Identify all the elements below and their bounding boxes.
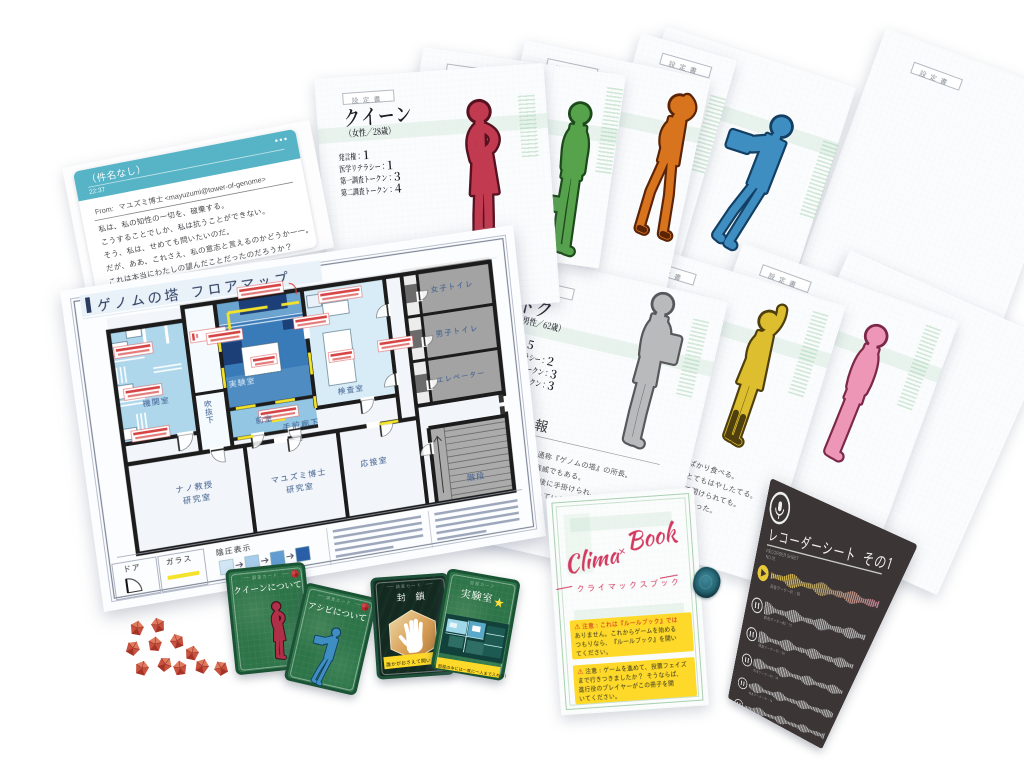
svg-text:⚠: ⚠	[577, 668, 584, 676]
svg-text:⚠: ⚠	[574, 623, 581, 631]
svg-text:22:37: 22:37	[89, 186, 107, 196]
svg-text:From:: From:	[94, 204, 114, 216]
svg-text:<mayuzumi@tower-of-genome>: <mayuzumi@tower-of-genome>	[164, 174, 267, 202]
svg-text:NO.01: NO.01	[765, 554, 775, 562]
svg-text:×: ×	[617, 544, 627, 559]
